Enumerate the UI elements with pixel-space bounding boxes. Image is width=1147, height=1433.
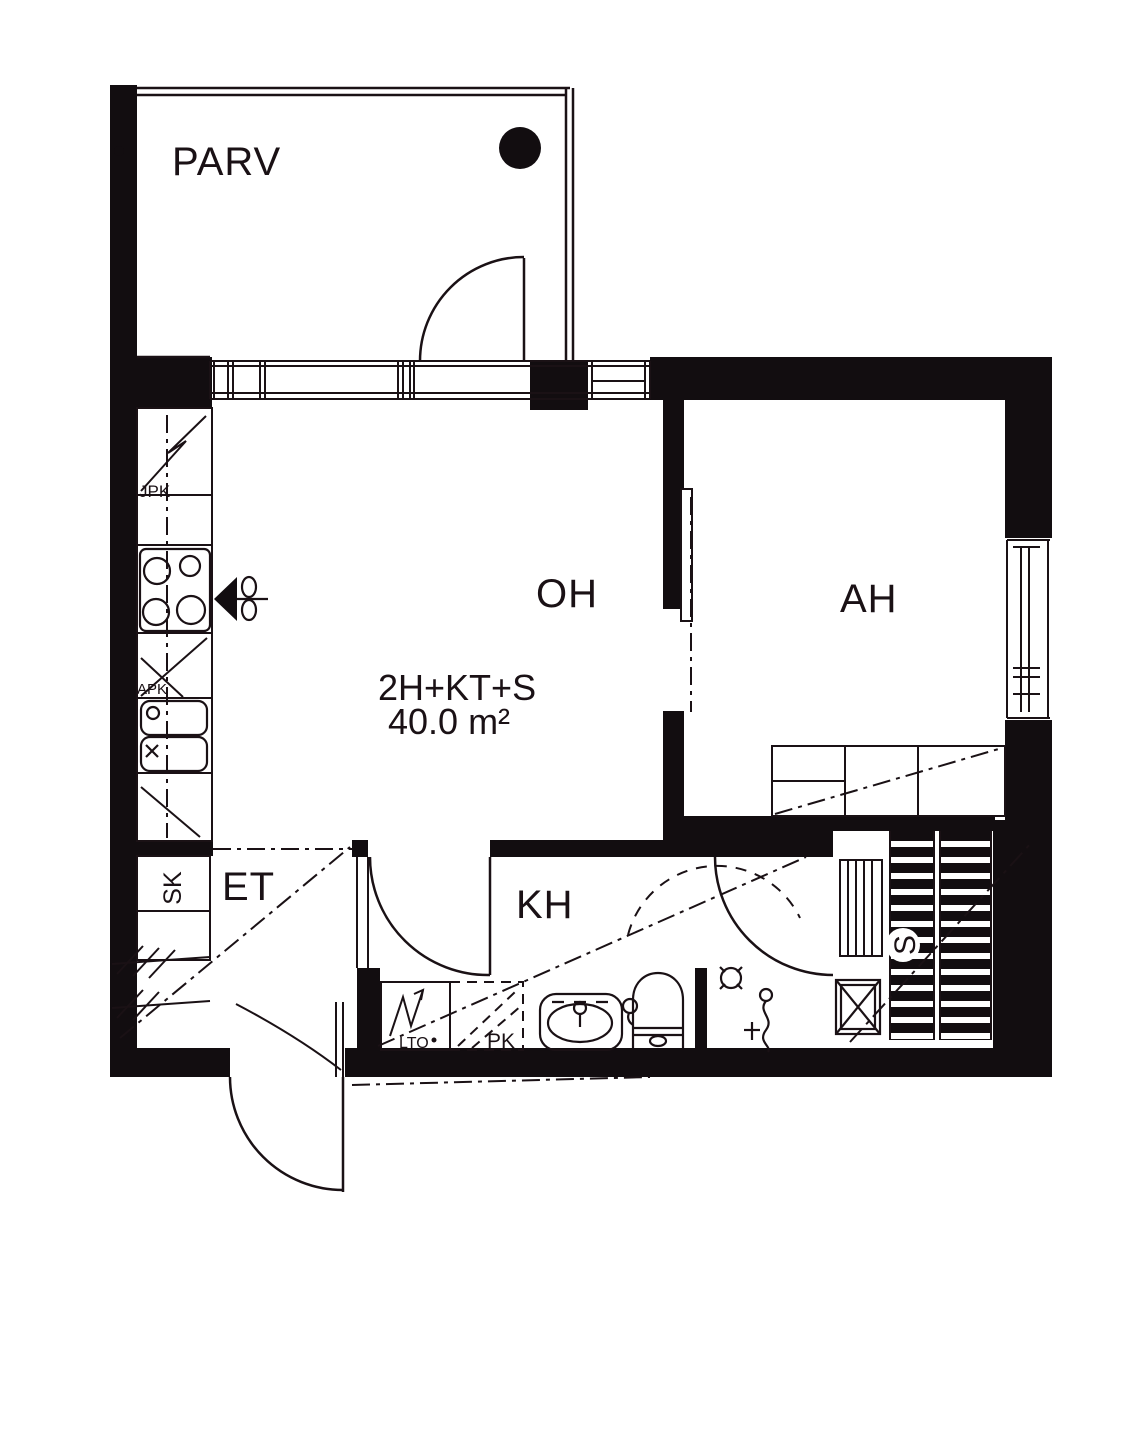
wall-balcony-end-block bbox=[110, 357, 212, 408]
wall-bottom-right bbox=[345, 1048, 1052, 1077]
room-label-kh: KH bbox=[516, 883, 574, 927]
alcove-window bbox=[1007, 540, 1050, 718]
balcony-outline bbox=[137, 88, 573, 361]
balcony-door bbox=[420, 257, 524, 361]
wall-dot bbox=[114, 146, 124, 156]
floor-plan-drawing: PARV OH AH ET KH S 2H+KT+S 40.0 m² JPK A… bbox=[0, 0, 1147, 1433]
sauna-door-arc bbox=[715, 857, 833, 975]
wall-window-pier bbox=[530, 361, 588, 410]
wall-left bbox=[110, 85, 137, 1077]
wall-kh-jamb-left bbox=[352, 840, 368, 857]
wall-oh-kh bbox=[490, 840, 683, 857]
fridge-freezer-mark bbox=[141, 416, 206, 491]
room-label-parv: PARV bbox=[172, 140, 281, 184]
kitchen-counter bbox=[137, 408, 212, 841]
room-label-sauna: S bbox=[889, 935, 922, 955]
sauna-stove-icon bbox=[836, 980, 880, 1034]
kitchen-sink-icon bbox=[141, 701, 207, 771]
fixture-label-sk: SK bbox=[159, 871, 187, 905]
wall-top-alcove bbox=[650, 357, 1007, 400]
fixture-label-jpk: JPK bbox=[139, 482, 171, 501]
fixture-label-lto: LTO bbox=[399, 1035, 429, 1052]
toilet-icon bbox=[633, 973, 683, 1048]
room-label-ah: AH bbox=[840, 577, 898, 621]
wall-sauna-right bbox=[993, 820, 1052, 1050]
wall-kh-sauna bbox=[683, 816, 833, 857]
floor-drain-icon bbox=[720, 967, 742, 989]
wall-oh-ah-lower bbox=[663, 711, 684, 857]
stove-icon bbox=[140, 549, 210, 631]
entrance-door bbox=[230, 1002, 343, 1192]
wall-et-stub bbox=[137, 841, 213, 856]
shower-area-arc bbox=[628, 866, 800, 935]
fixture-label-pk: PK bbox=[487, 1030, 515, 1053]
apartment-area-label: 40.0 m² bbox=[388, 701, 510, 742]
sauna-door-panel bbox=[840, 860, 882, 956]
floor-plan-page: PARV OH AH ET KH S 2H+KT+S 40.0 m² JPK A… bbox=[0, 0, 1147, 1433]
shower-icon bbox=[744, 989, 772, 1052]
bathroom-door bbox=[370, 857, 490, 975]
room-label-oh: OH bbox=[536, 572, 598, 616]
room-label-et: ET bbox=[222, 865, 275, 909]
wall-bottom-left bbox=[110, 1048, 230, 1077]
et-kh-partition bbox=[357, 857, 368, 968]
washbasin-icon bbox=[540, 994, 637, 1050]
wall-lto-stub bbox=[357, 968, 380, 1050]
fixture-label-apk: APK bbox=[137, 681, 167, 698]
wall-shower-partition bbox=[695, 968, 707, 1050]
cooker-hood-icon bbox=[214, 577, 268, 621]
balcony-pillar bbox=[499, 127, 541, 169]
wall-right-upper bbox=[1005, 357, 1052, 538]
wall-ah-sauna bbox=[833, 816, 995, 831]
